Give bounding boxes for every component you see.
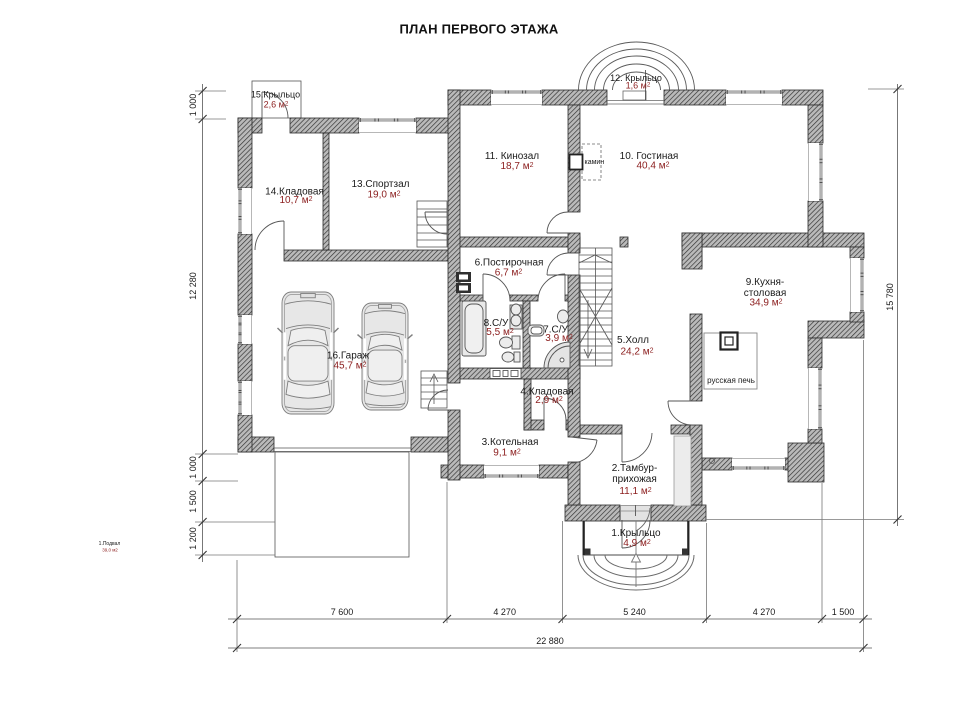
- svg-text:9,1 м2: 9,1 м2: [493, 448, 521, 459]
- svg-text:1 200: 1 200: [188, 527, 198, 550]
- svg-text:камин: камин: [585, 159, 605, 166]
- svg-text:3.Котельная: 3.Котельная: [482, 437, 539, 448]
- svg-text:39,0 м2: 39,0 м2: [102, 548, 118, 553]
- svg-text:15.Крыльцо: 15.Крыльцо: [251, 90, 300, 100]
- svg-text:3,9 м2: 3,9 м2: [545, 333, 573, 344]
- svg-text:1 500: 1 500: [188, 490, 198, 513]
- svg-text:1 000: 1 000: [188, 94, 198, 117]
- svg-text:4 270: 4 270: [493, 607, 516, 617]
- svg-text:1 000: 1 000: [188, 456, 198, 479]
- svg-text:15 780: 15 780: [885, 283, 895, 311]
- svg-text:12 280: 12 280: [188, 272, 198, 300]
- svg-text:6,7 м2: 6,7 м2: [495, 268, 523, 279]
- svg-text:5,5 м2: 5,5 м2: [486, 327, 514, 338]
- svg-text:13.Спортзал: 13.Спортзал: [351, 179, 409, 190]
- svg-text:2,9 м2: 2,9 м2: [535, 395, 563, 406]
- svg-text:1.Подвал: 1.Подвал: [99, 541, 121, 547]
- svg-text:10,7 м2: 10,7 м2: [279, 195, 312, 206]
- svg-text:45,7 м2: 45,7 м2: [333, 361, 366, 372]
- svg-text:ПЛАН ПЕРВОГО ЭТАЖА: ПЛАН ПЕРВОГО ЭТАЖА: [399, 22, 558, 37]
- svg-text:22 880: 22 880: [536, 636, 564, 646]
- svg-text:7 600: 7 600: [331, 607, 354, 617]
- svg-text:19,0 м2: 19,0 м2: [367, 190, 400, 201]
- svg-text:9.Кухня-: 9.Кухня-: [746, 277, 784, 288]
- svg-text:5 240: 5 240: [623, 607, 646, 617]
- svg-text:прихожая: прихожая: [612, 474, 657, 485]
- svg-text:18,7 м2: 18,7 м2: [500, 161, 533, 172]
- svg-text:4 270: 4 270: [753, 607, 776, 617]
- svg-text:5.Холл: 5.Холл: [617, 335, 649, 346]
- svg-text:24,2 м2: 24,2 м2: [620, 347, 653, 358]
- svg-text:11,1 м2: 11,1 м2: [619, 486, 651, 497]
- svg-text:2.Тамбур-: 2.Тамбур-: [612, 462, 658, 474]
- svg-text:34,9 м2: 34,9 м2: [749, 298, 782, 309]
- svg-text:1 500: 1 500: [832, 607, 855, 617]
- svg-text:русская печь: русская печь: [707, 376, 755, 385]
- svg-text:4,9 м2: 4,9 м2: [623, 538, 651, 549]
- svg-text:40,4 м2: 40,4 м2: [636, 161, 669, 172]
